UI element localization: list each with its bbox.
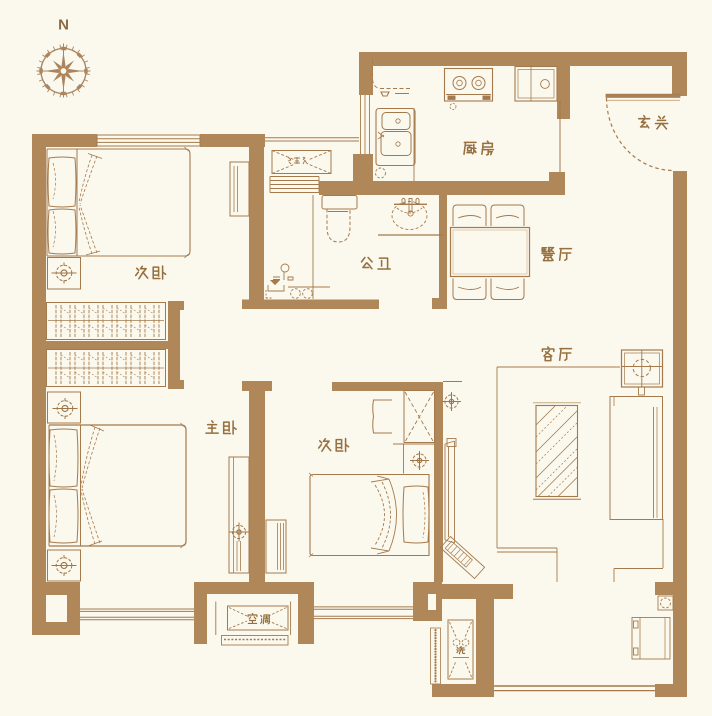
svg-text:N: N <box>58 17 69 34</box>
